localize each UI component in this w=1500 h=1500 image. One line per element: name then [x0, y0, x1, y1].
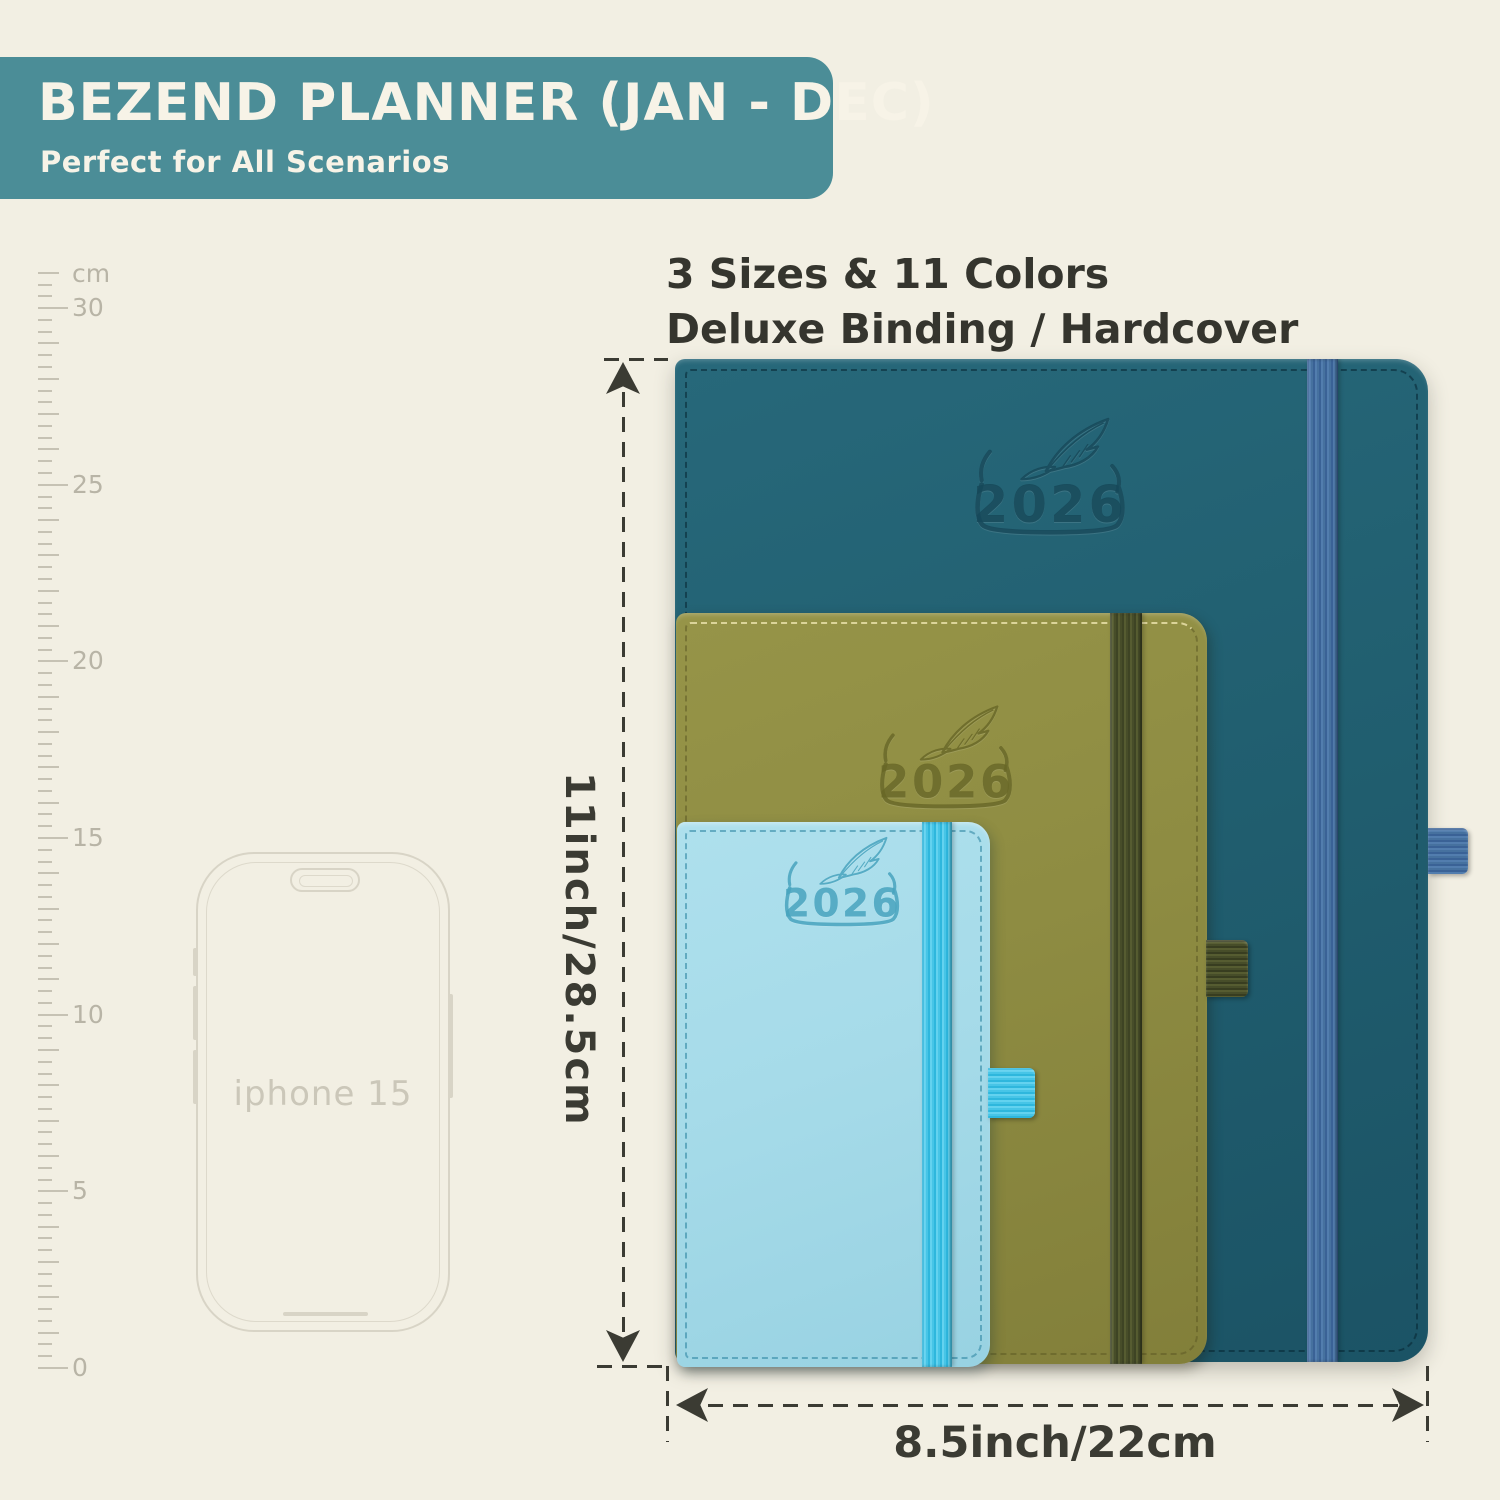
ruler-tick — [38, 390, 52, 392]
ruler-tick — [38, 931, 52, 933]
ruler-tick — [38, 1108, 52, 1110]
page-title: BEZEND PLANNER (JAN - DEC) — [38, 73, 935, 133]
ruler-tick — [38, 625, 59, 627]
elastic-band — [1110, 613, 1142, 1364]
ruler-tick — [38, 378, 59, 380]
ruler-tick — [38, 354, 52, 356]
ruler-label: 20 — [72, 647, 104, 675]
ruler-tick — [38, 708, 52, 710]
ruler-tick — [38, 790, 52, 792]
ruler-tick — [38, 1308, 52, 1310]
ruler-tick — [38, 1061, 52, 1063]
ruler-tick — [38, 1261, 59, 1263]
ruler-label: 10 — [72, 1001, 104, 1029]
ruler-tick — [38, 1190, 68, 1192]
ruler-tick — [38, 1037, 52, 1039]
ruler-tick — [38, 543, 52, 545]
ruler-tick — [38, 1120, 59, 1122]
ruler-label: 5 — [72, 1177, 88, 1205]
ruler-tick — [38, 1131, 52, 1133]
ruler-tick — [38, 448, 59, 450]
ruler-tick — [38, 1285, 52, 1287]
ruler-tick — [38, 1320, 52, 1322]
ruler-tick — [38, 813, 52, 815]
ruler-tick — [38, 1273, 52, 1275]
arrow-left-icon — [676, 1388, 708, 1422]
ruler-tick — [38, 566, 52, 568]
year-text: 2026 — [878, 755, 1014, 808]
ruler-tick — [38, 660, 68, 662]
year-text: 2026 — [783, 882, 901, 927]
ruler-tick — [38, 896, 52, 898]
ruler-tick — [38, 1155, 59, 1157]
ruler-tick — [38, 331, 52, 333]
ruler-tick — [38, 825, 52, 827]
ruler-tick — [38, 1214, 52, 1216]
phone-action-button-icon — [193, 948, 198, 976]
height-dimension-label: 11inch/28.5cm — [556, 772, 602, 1172]
phone-speaker-line-icon — [283, 1312, 368, 1316]
planner-small-sky: 2026 — [677, 822, 990, 1367]
ruler-tick — [38, 578, 52, 580]
ruler-tick — [38, 802, 59, 804]
ruler-tick — [38, 1025, 52, 1027]
dynamic-island-inner-icon — [299, 875, 353, 887]
ruler-tick — [38, 613, 52, 615]
ruler-tick — [38, 366, 52, 368]
ruler-tick — [38, 1355, 52, 1357]
ruler-tick — [38, 731, 59, 733]
ruler-tick — [38, 554, 59, 556]
ruler-tick — [38, 590, 59, 592]
ruler-label: 0 — [72, 1354, 88, 1382]
pen-loop — [988, 1068, 1035, 1118]
height-dimension-line — [622, 392, 625, 1340]
ruler-tick — [38, 990, 52, 992]
pen-loop — [1428, 828, 1468, 874]
ruler-tick — [38, 307, 68, 309]
pen-loop — [1206, 940, 1248, 997]
elastic-band — [922, 822, 952, 1367]
ruler-tick — [38, 437, 52, 439]
ruler-tick — [38, 472, 52, 474]
dynamic-island-icon — [290, 868, 360, 892]
ruler-tick — [38, 1084, 59, 1086]
ruler-tick — [38, 342, 59, 344]
ruler-tick — [38, 872, 59, 874]
ruler-tick — [38, 778, 52, 780]
ruler-tick — [38, 519, 59, 521]
ruler-tick — [38, 531, 52, 533]
ruler-tick — [38, 955, 52, 957]
ruler-tick — [38, 861, 52, 863]
ruler-tick — [38, 496, 52, 498]
iphone-outline: iphone 15 — [196, 852, 450, 1332]
page-subtitle: Perfect for All Scenarios — [40, 145, 450, 179]
ruler-tick — [38, 943, 59, 945]
ruler-tick — [38, 649, 52, 651]
ruler-tick — [38, 401, 52, 403]
ruler-tick — [38, 1073, 52, 1075]
ruler-tick — [38, 460, 52, 462]
ruler-tick — [38, 295, 52, 297]
feature-sizes-colors: 3 Sizes & 11 Colors — [666, 250, 1109, 298]
ruler-tick — [38, 1237, 52, 1239]
ruler-tick — [38, 637, 52, 639]
ruler-tick — [38, 967, 52, 969]
ruler-tick — [38, 719, 52, 721]
ruler-tick — [38, 272, 59, 274]
year-emblem: 2026 — [856, 702, 1036, 837]
ruler-tick — [38, 1096, 52, 1098]
phone-volume-up-icon — [193, 986, 198, 1040]
ruler-tick — [38, 908, 59, 910]
ruler-tick — [38, 602, 52, 604]
phone-model-label: iphone 15 — [198, 1074, 448, 1114]
ruler-tick — [38, 696, 59, 698]
ruler-tick — [38, 766, 59, 768]
width-boundary-right — [1426, 1366, 1429, 1442]
ruler-label: 15 — [72, 824, 104, 852]
arrow-up-icon — [606, 362, 640, 394]
ruler-tick — [38, 319, 52, 321]
year-emblem: 2026 — [764, 834, 920, 951]
ruler-tick — [38, 425, 52, 427]
ruler-tick — [38, 507, 52, 509]
ruler-tick — [38, 849, 52, 851]
dimension-extension-bottom — [597, 1365, 668, 1368]
ruler-tick — [38, 1049, 59, 1051]
ruler-tick — [38, 1367, 68, 1369]
ruler-tick — [38, 1002, 52, 1004]
ruler-label: 25 — [72, 471, 104, 499]
width-dimension-line — [708, 1404, 1398, 1407]
year-emblem: 2026 — [948, 414, 1152, 567]
width-boundary-left — [666, 1366, 669, 1442]
phone-power-button-icon — [448, 994, 453, 1098]
ruler-tick — [38, 919, 52, 921]
ruler-tick — [38, 1249, 52, 1251]
ruler-tick — [38, 1296, 59, 1298]
ruler-label: 30 — [72, 294, 104, 322]
ruler-tick — [38, 284, 52, 286]
feature-binding: Deluxe Binding / Hardcover — [666, 305, 1298, 353]
ruler-tick — [38, 1226, 59, 1228]
ruler-tick — [38, 413, 59, 415]
ruler-tick — [38, 1202, 52, 1204]
ruler-tick — [38, 837, 68, 839]
title-banner: BEZEND PLANNER (JAN - DEC) Perfect for A… — [0, 57, 833, 199]
ruler-tick — [38, 484, 68, 486]
ruler-tick — [38, 672, 52, 674]
ruler-tick — [38, 1014, 68, 1016]
dimension-extension-top — [604, 358, 668, 361]
ruler-tick — [38, 1332, 59, 1334]
product-image: BEZEND PLANNER (JAN - DEC) Perfect for A… — [0, 0, 1500, 1500]
ruler-tick — [38, 1179, 52, 1181]
ruler-tick — [38, 755, 52, 757]
width-dimension-label: 8.5inch/22cm — [880, 1418, 1230, 1468]
ruler-tick — [38, 884, 52, 886]
ruler-tick — [38, 684, 52, 686]
ruler-tick — [38, 1343, 52, 1345]
ruler-tick — [38, 743, 52, 745]
ruler-tick — [38, 1167, 52, 1169]
year-text: 2026 — [973, 476, 1127, 535]
ruler-tick — [38, 1143, 52, 1145]
ruler-tick — [38, 978, 59, 980]
elastic-band — [1307, 359, 1338, 1362]
ruler-unit-label: cm — [72, 259, 110, 288]
